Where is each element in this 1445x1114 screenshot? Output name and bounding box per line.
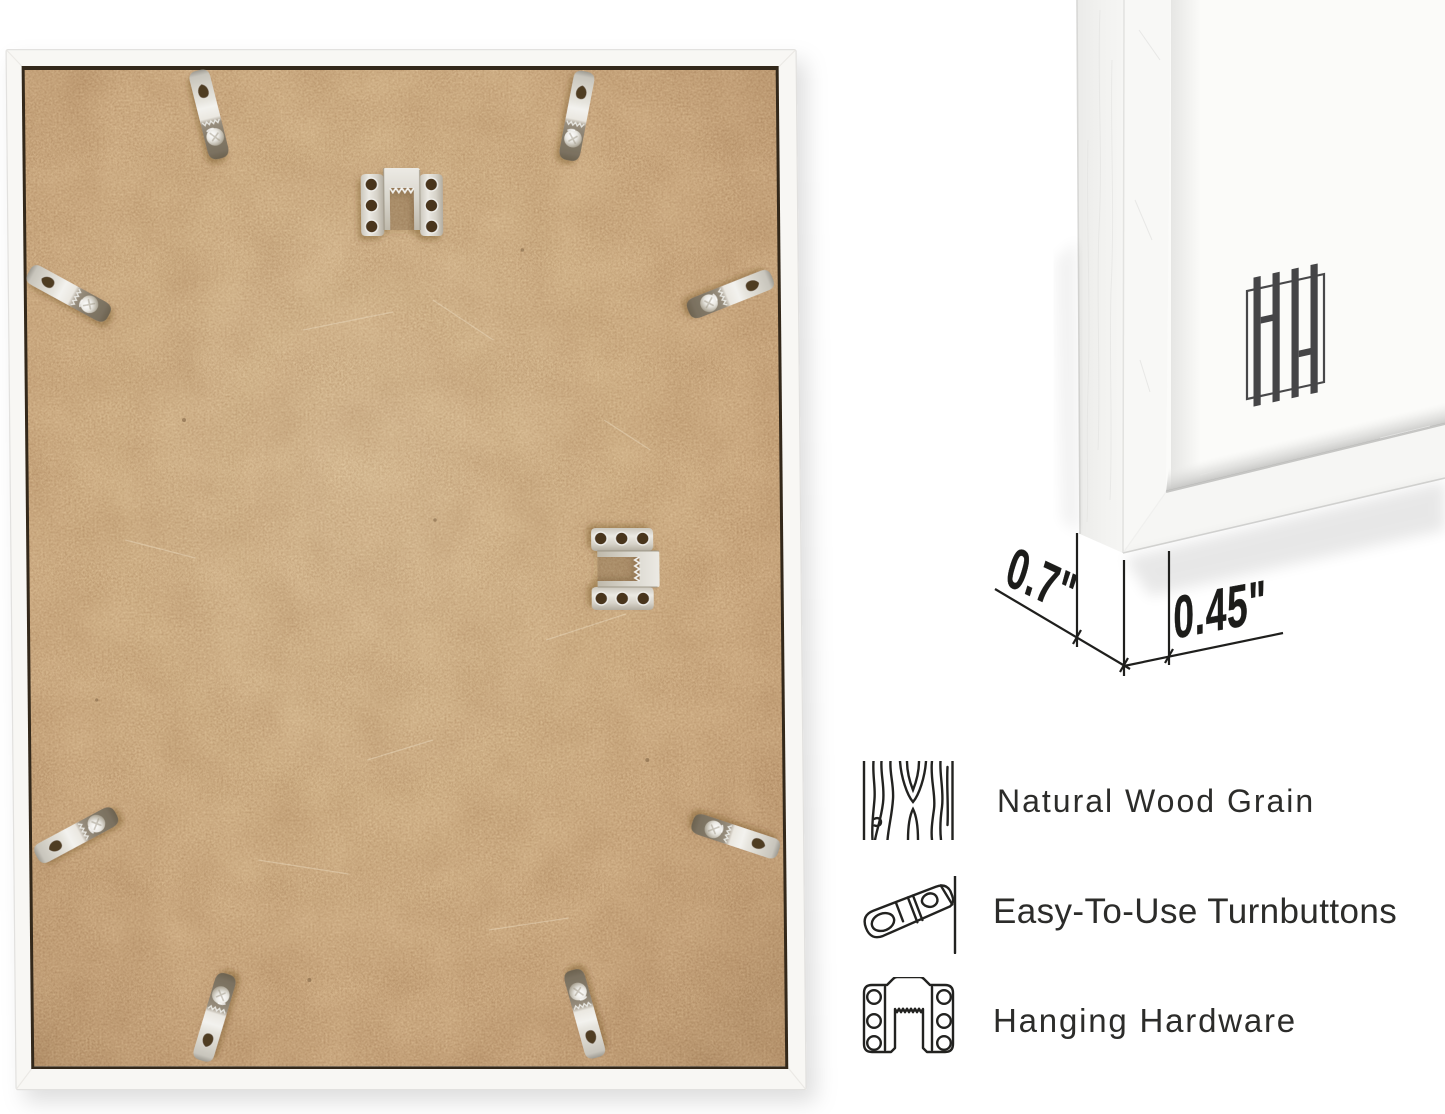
svg-text:0.7": 0.7" — [999, 535, 1083, 627]
